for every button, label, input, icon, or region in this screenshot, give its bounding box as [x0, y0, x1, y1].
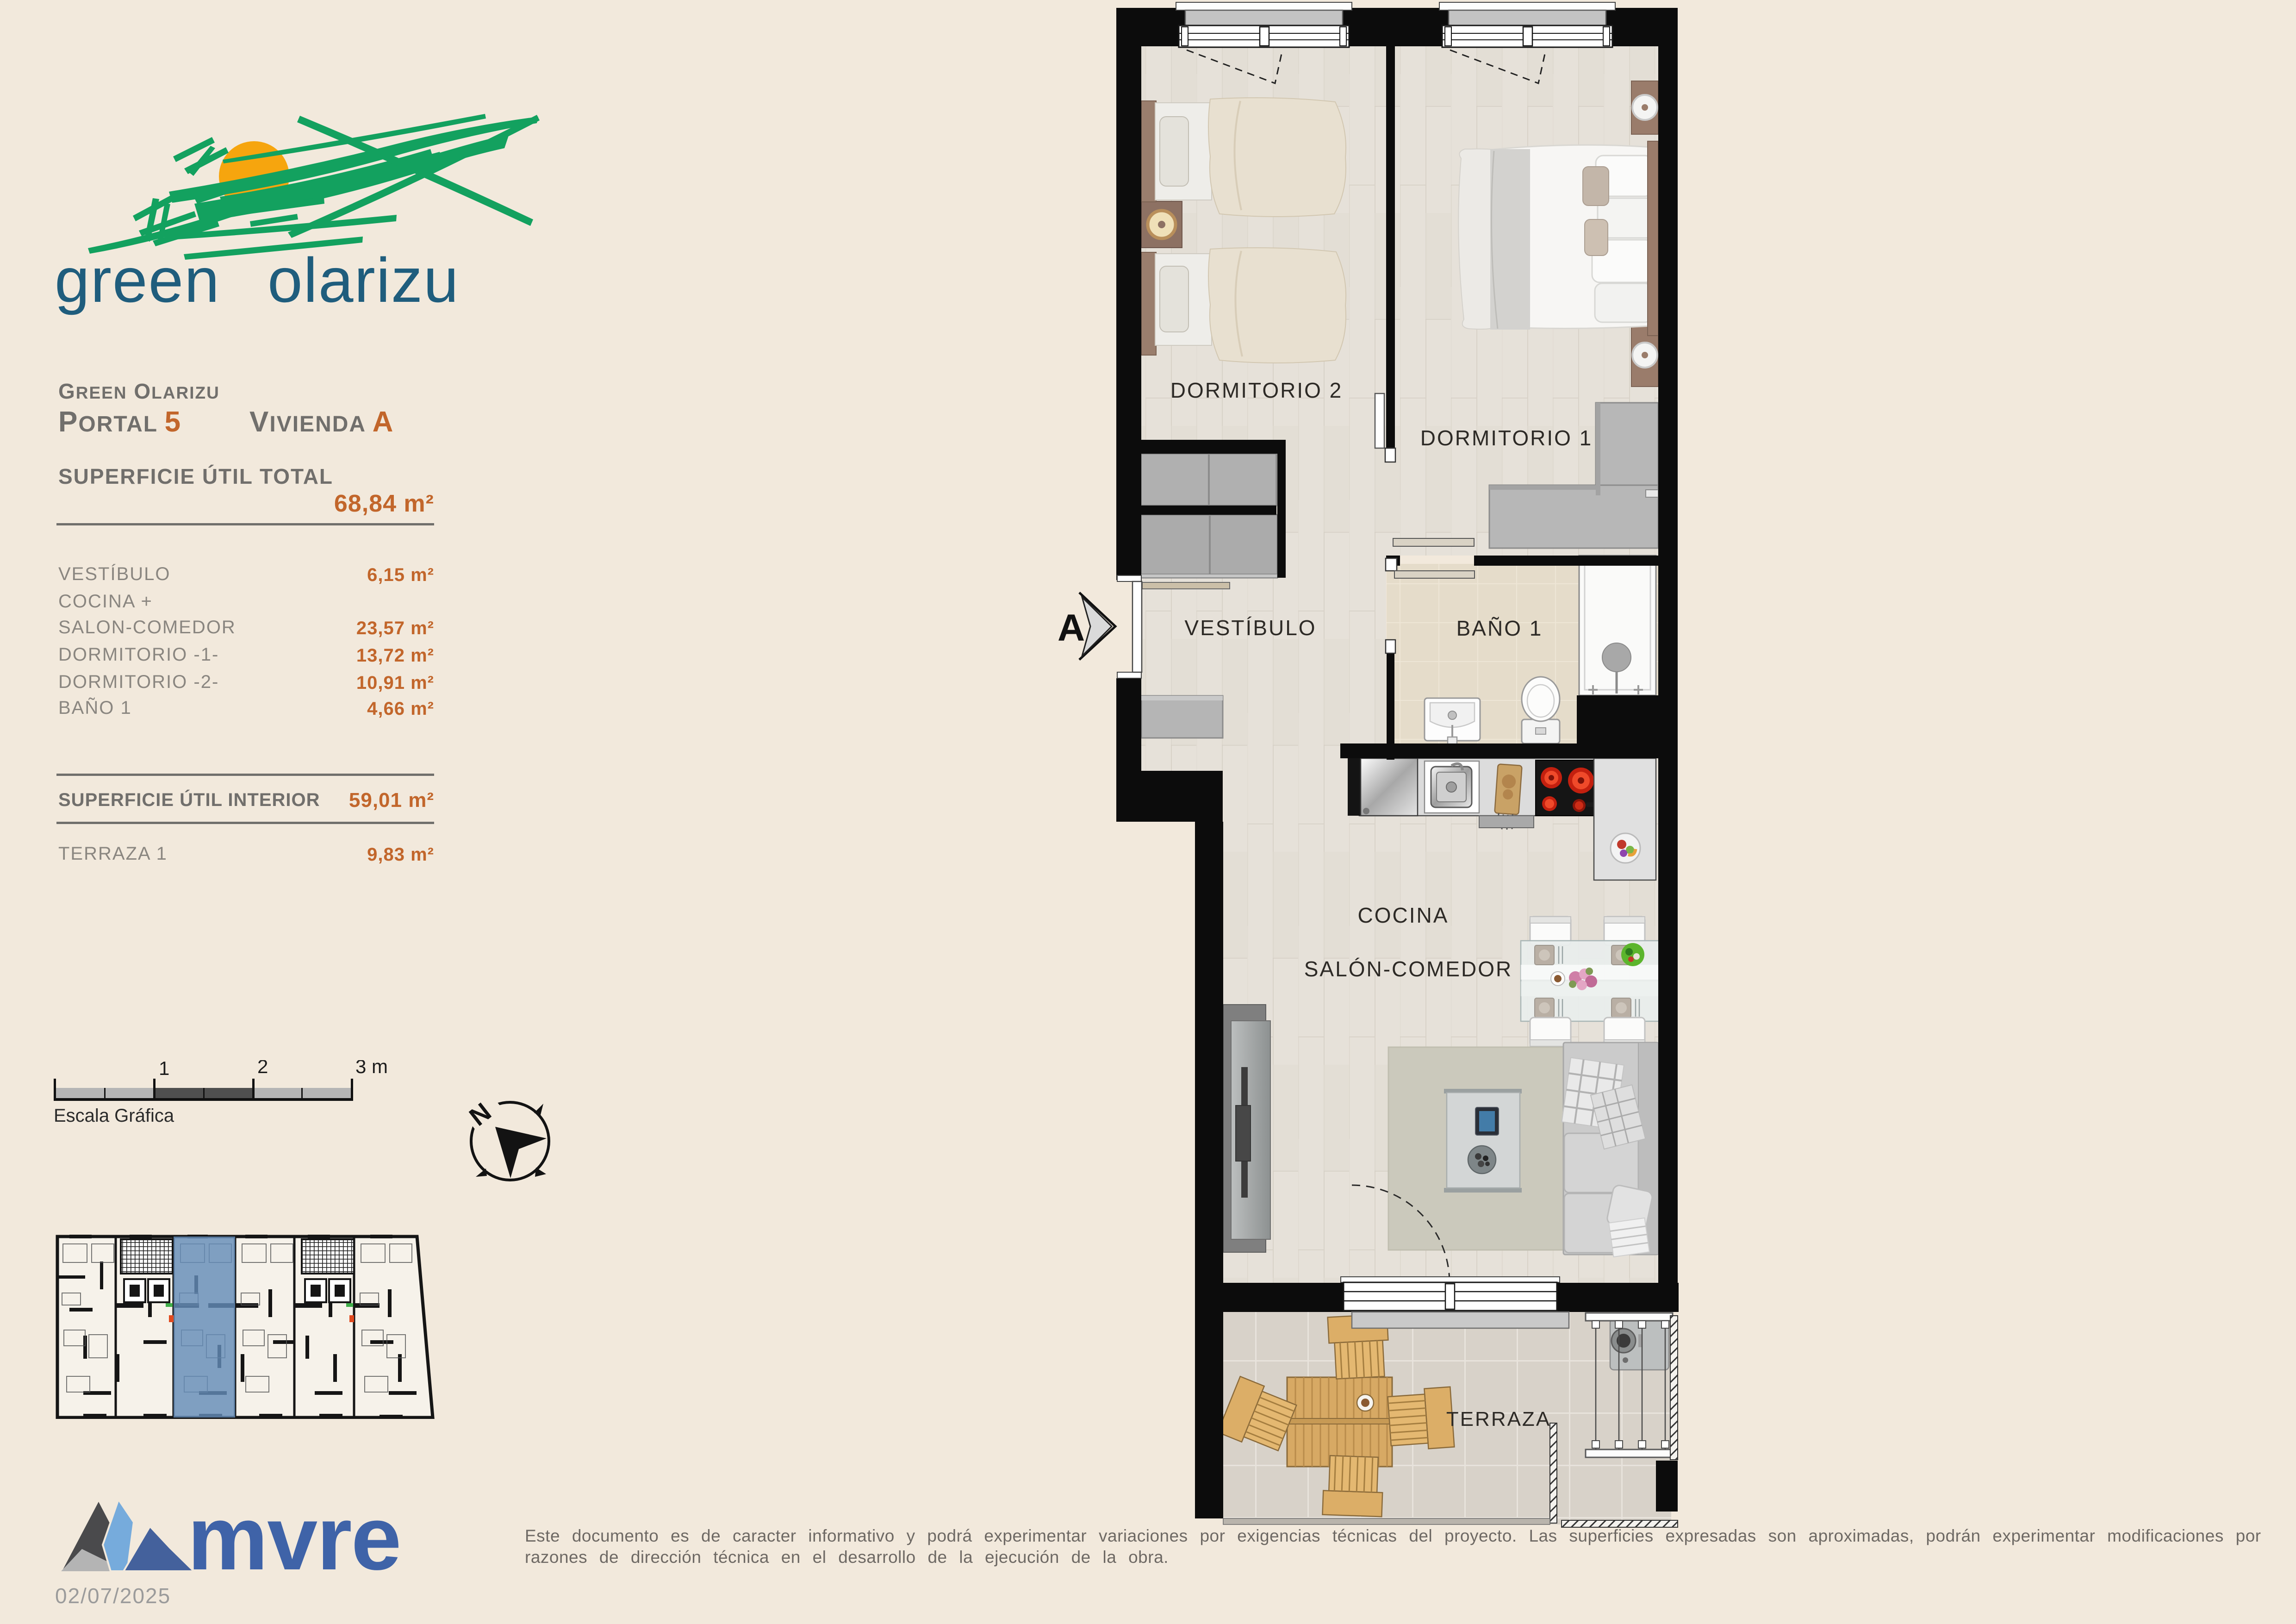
- svg-text:BAÑO 1: BAÑO 1: [1456, 616, 1543, 640]
- svg-text:VESTÍBULO: VESTÍBULO: [1184, 616, 1316, 640]
- svg-text:DORMITORIO 2: DORMITORIO 2: [1170, 378, 1343, 402]
- svg-text:Escala Gráfica: Escala Gráfica: [54, 1106, 174, 1125]
- svg-text:A: A: [1058, 607, 1085, 649]
- svg-text:2: 2: [257, 1060, 268, 1077]
- svg-text:green: green: [55, 245, 220, 315]
- svg-text:1: 1: [159, 1060, 169, 1079]
- svg-text:mvre: mvre: [187, 1495, 401, 1579]
- svg-text:olarizu: olarizu: [268, 245, 460, 315]
- svg-text:SALÓN-COMEDOR: SALÓN-COMEDOR: [1304, 957, 1512, 981]
- svg-text:TERRAZA: TERRAZA: [1446, 1408, 1551, 1430]
- svg-text:3 m.: 3 m.: [355, 1060, 389, 1077]
- svg-text:DORMITORIO 1: DORMITORIO 1: [1420, 426, 1593, 450]
- svg-text:COCINA: COCINA: [1358, 903, 1449, 927]
